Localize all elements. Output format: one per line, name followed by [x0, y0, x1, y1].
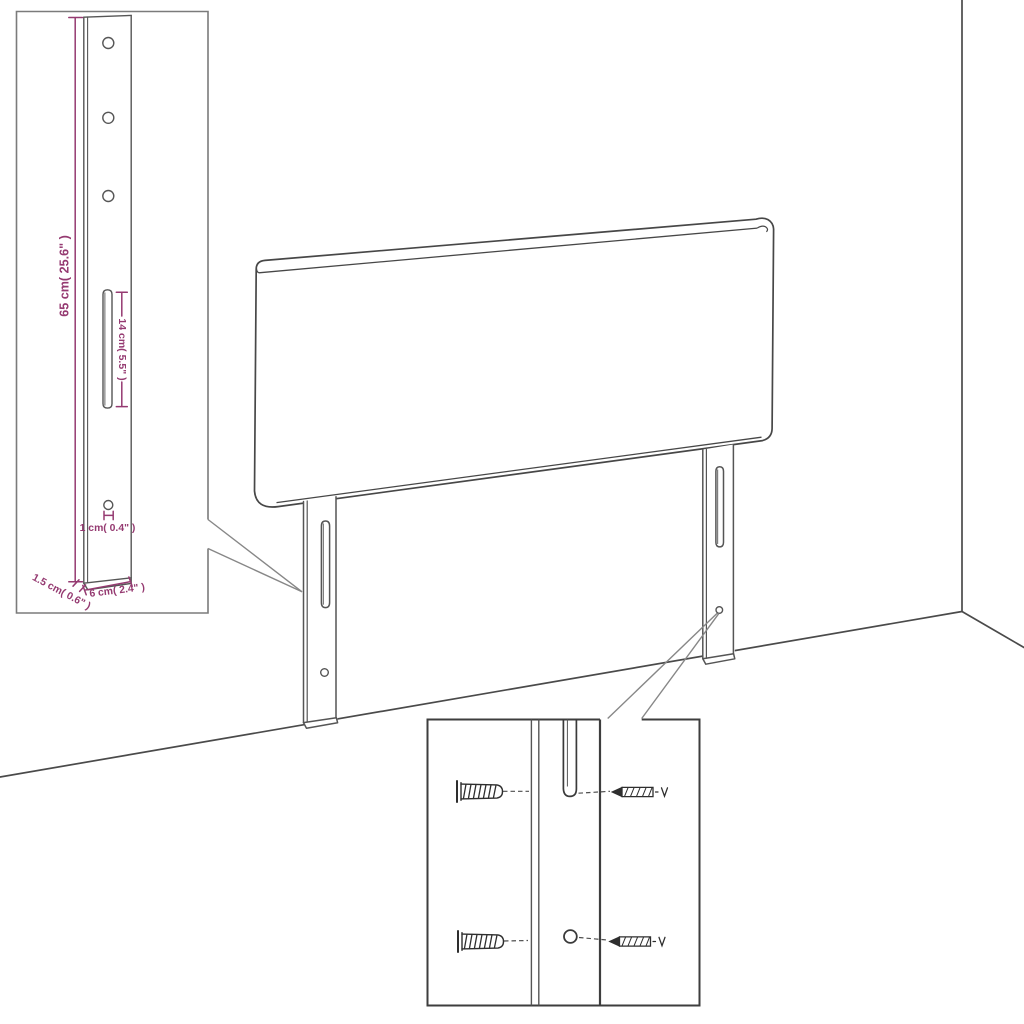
detail-leg-strip	[531, 720, 600, 1006]
headboard-panel	[255, 218, 774, 507]
dim-label-leg-height: 65 cm( 25.6" )	[58, 235, 72, 317]
dim-label-hole-diameter: 1 cm( 0.4" )	[80, 523, 136, 534]
right-leg-slot	[716, 467, 724, 547]
diagram-page: 65 cm( 25.6" ) 14 cm( 5.5" ) 1 cm( 0.4" …	[0, 0, 1024, 1024]
dashed-guide-bottom-left	[504, 941, 528, 942]
right-leg-screw-hole	[716, 607, 723, 614]
headboard	[255, 218, 774, 728]
wall-plug-bottom	[458, 931, 504, 952]
detail-leg-slot	[563, 720, 576, 797]
inset-leg-hole-4	[104, 501, 113, 510]
left-leg-body	[304, 497, 338, 729]
left-leg-slot	[321, 521, 329, 608]
detail-callout-line-right	[642, 614, 719, 719]
floor-line-right	[962, 612, 1024, 648]
inset-leg-hole-1	[103, 38, 114, 49]
screw-bottom	[610, 937, 666, 946]
dim-label-leg-thickness: 1.5 cm( 0.6" )	[30, 572, 92, 612]
screw-top	[612, 787, 668, 796]
dashed-guide-top-right	[579, 791, 611, 793]
inset-leg-slot	[103, 290, 112, 408]
detail-leg-hole	[564, 930, 577, 943]
mounting-detail-inset	[428, 613, 719, 1005]
floor-line-left	[0, 612, 962, 778]
inset-leg-hole-3	[103, 191, 114, 202]
left-leg-screw-hole	[321, 669, 329, 677]
inset-leg-hole-2	[103, 112, 114, 123]
right-mounting-leg	[703, 445, 735, 665]
dim-label-slot-length: 14 cm( 5.5" )	[116, 318, 128, 380]
dashed-guide-bottom-right	[579, 938, 607, 941]
wall-plug-top	[457, 781, 503, 802]
left-mounting-leg	[304, 497, 338, 729]
detail-callout-line-left	[608, 613, 718, 718]
inset-leg	[84, 15, 131, 589]
assembly-diagram: 65 cm( 25.6" ) 14 cm( 5.5" ) 1 cm( 0.4" …	[0, 0, 1024, 1024]
inset-callout-lines	[208, 520, 302, 592]
detail-dashed-guides	[503, 791, 610, 941]
